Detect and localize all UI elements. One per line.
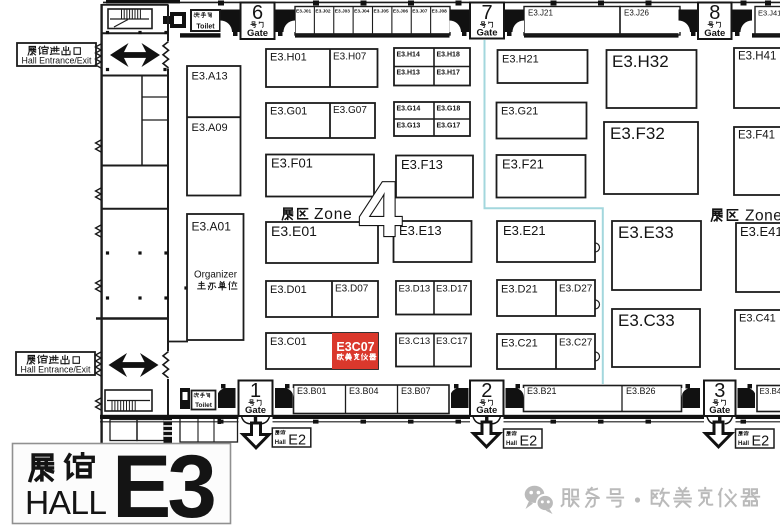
svg-text:E3.J05: E3.J05 — [374, 8, 390, 14]
svg-text:E3.H14: E3.H14 — [397, 52, 420, 59]
svg-text:E3.E41: E3.E41 — [740, 224, 780, 239]
svg-text:Zone: Zone — [745, 208, 780, 225]
svg-text:E3.D01: E3.D01 — [270, 284, 307, 296]
svg-text:E3.G17: E3.G17 — [437, 123, 461, 130]
svg-text:E3.H01: E3.H01 — [270, 52, 307, 64]
svg-text:8: 8 — [709, 2, 720, 24]
svg-text:E3.D21: E3.D21 — [501, 284, 538, 296]
svg-text:E2: E2 — [288, 433, 306, 449]
svg-text:Organizer: Organizer — [194, 270, 238, 281]
svg-text:E3.H07: E3.H07 — [333, 52, 367, 63]
svg-text:E3.G18: E3.G18 — [437, 106, 461, 113]
svg-text:7: 7 — [481, 2, 492, 24]
svg-text:Gate: Gate — [247, 28, 268, 39]
svg-text:E3: E3 — [112, 436, 214, 531]
svg-text:E3.C33: E3.C33 — [618, 311, 675, 330]
svg-text:E3.H21: E3.H21 — [502, 54, 539, 66]
svg-text:E3.C27: E3.C27 — [559, 338, 593, 349]
svg-text:E3.J01: E3.J01 — [296, 8, 312, 14]
svg-text:Gate: Gate — [709, 405, 730, 416]
svg-text:Gate: Gate — [704, 28, 725, 39]
svg-text:Hall: Hall — [738, 441, 749, 447]
svg-text:E3.J06: E3.J06 — [393, 8, 409, 14]
svg-text:3: 3 — [714, 380, 725, 402]
svg-text:4: 4 — [359, 165, 402, 253]
svg-text:E3.E33: E3.E33 — [618, 223, 674, 242]
svg-text:E3.B21: E3.B21 — [527, 386, 557, 396]
svg-text:2: 2 — [481, 380, 492, 402]
svg-text:E3.A13: E3.A13 — [192, 71, 228, 83]
svg-text:E3.H41: E3.H41 — [738, 51, 776, 63]
svg-text:E3.C01: E3.C01 — [270, 336, 307, 348]
svg-text:E3.G14: E3.G14 — [397, 106, 421, 113]
svg-text:E3.J41: E3.J41 — [758, 9, 780, 18]
svg-text:E3.G07: E3.G07 — [333, 105, 367, 116]
svg-text:1: 1 — [250, 380, 261, 402]
svg-text:Toilet: Toilet — [195, 402, 213, 409]
svg-text:E3.J02: E3.J02 — [315, 8, 331, 14]
svg-text:Hall Entrance/Exit: Hall Entrance/Exit — [21, 365, 91, 375]
svg-text:E3.B04: E3.B04 — [349, 386, 379, 396]
svg-text:E3.A01: E3.A01 — [192, 220, 232, 234]
svg-text:E3.B26: E3.B26 — [626, 386, 656, 396]
svg-text:E3.J07: E3.J07 — [412, 8, 428, 14]
svg-text:E3.F13: E3.F13 — [401, 157, 443, 172]
svg-text:E3.H32: E3.H32 — [612, 52, 669, 71]
svg-text:E3.J03: E3.J03 — [335, 8, 351, 14]
svg-text:Hall: Hall — [506, 441, 517, 447]
svg-text:E3.C21: E3.C21 — [501, 338, 538, 350]
svg-text:E3.D13: E3.D13 — [399, 284, 431, 295]
svg-text:E3.F41: E3.F41 — [738, 130, 775, 142]
svg-text:E3.C41: E3.C41 — [739, 313, 776, 325]
svg-text:E3.A09: E3.A09 — [192, 122, 228, 134]
svg-text:Gate: Gate — [245, 405, 266, 416]
svg-text:E3.B07: E3.B07 — [401, 386, 431, 396]
svg-text:Gate: Gate — [476, 405, 497, 416]
svg-text:E3.J08: E3.J08 — [432, 8, 448, 14]
svg-text:E2: E2 — [520, 434, 538, 450]
svg-text:E3.D07: E3.D07 — [335, 284, 369, 295]
svg-text:E3.B41: E3.B41 — [760, 387, 780, 396]
svg-text:E3.J04: E3.J04 — [354, 8, 370, 14]
svg-text:E3.B01: E3.B01 — [297, 386, 327, 396]
svg-text:E3.H13: E3.H13 — [397, 70, 420, 77]
svg-text:E3.F32: E3.F32 — [610, 124, 665, 143]
svg-text:Gate: Gate — [476, 28, 497, 39]
svg-text:Toilet: Toilet — [196, 24, 215, 31]
svg-text:E3.G01: E3.G01 — [270, 106, 307, 118]
svg-text:Hall: Hall — [275, 440, 286, 446]
svg-text:E3.D17: E3.D17 — [436, 284, 468, 295]
svg-text:E2: E2 — [752, 434, 770, 450]
svg-text:E3.J26: E3.J26 — [624, 9, 649, 18]
svg-text:E3.H17: E3.H17 — [437, 70, 460, 77]
svg-text:E3.G21: E3.G21 — [501, 106, 538, 118]
svg-text:Zone: Zone — [314, 206, 353, 223]
svg-text:E3.C17: E3.C17 — [436, 336, 468, 347]
svg-text:Hall Entrance/Exit: Hall Entrance/Exit — [22, 56, 92, 66]
svg-text:E3.E21: E3.E21 — [503, 223, 546, 238]
svg-text:E3.F21: E3.F21 — [502, 157, 544, 172]
svg-text:E3C07: E3C07 — [336, 340, 374, 354]
svg-text:E3.J21: E3.J21 — [528, 9, 553, 18]
svg-text:E3.C13: E3.C13 — [399, 336, 431, 347]
svg-text:E3.D27: E3.D27 — [559, 284, 593, 295]
svg-text:E3.F01: E3.F01 — [271, 156, 313, 171]
svg-text:E3.H18: E3.H18 — [437, 52, 460, 59]
svg-text:HALL: HALL — [25, 485, 106, 522]
svg-text:E3.E01: E3.E01 — [271, 223, 317, 239]
svg-text:6: 6 — [252, 2, 263, 24]
svg-text:E3.G13: E3.G13 — [397, 123, 421, 130]
svg-text:E3.E13: E3.E13 — [399, 223, 442, 238]
